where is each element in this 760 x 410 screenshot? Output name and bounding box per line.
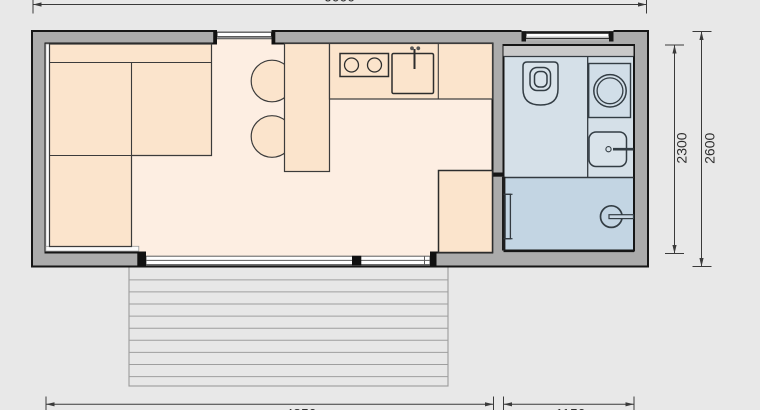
svg-text:1150: 1150 (555, 405, 585, 410)
svg-text:6000: 6000 (324, 0, 355, 5)
svg-text:2600: 2600 (702, 133, 718, 164)
svg-text:4850: 4850 (285, 405, 316, 410)
svg-text:2300: 2300 (673, 132, 689, 163)
